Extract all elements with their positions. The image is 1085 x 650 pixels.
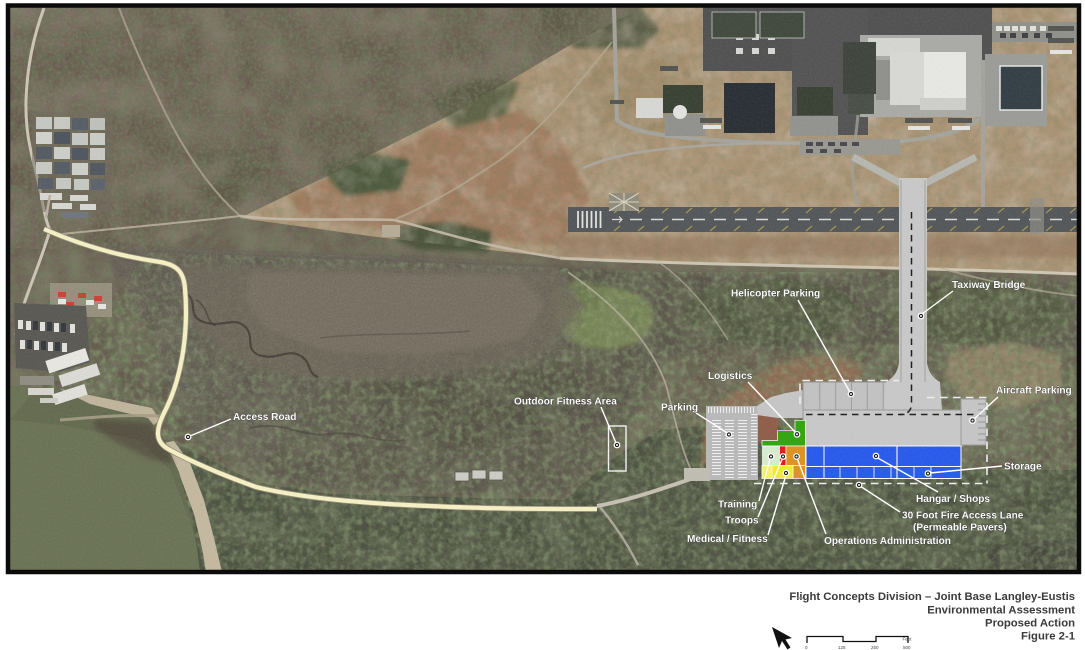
svg-text:Aircraft Parking: Aircraft Parking: [996, 386, 1072, 397]
svg-text:(Permeable Pavers): (Permeable Pavers): [913, 523, 1007, 534]
svg-text:Flight Concepts Division – Jo: Flight Concepts Division – Joint Base La…: [789, 591, 1075, 603]
svg-text:Access Road: Access Road: [233, 412, 296, 423]
svg-text:Troops: Troops: [725, 516, 759, 527]
svg-text:Proposed Action: Proposed Action: [985, 618, 1075, 630]
svg-text:Outdoor Fitness Area: Outdoor Fitness Area: [514, 397, 617, 408]
svg-text:Logistics: Logistics: [708, 371, 753, 382]
svg-text:250: 250: [871, 645, 879, 650]
svg-text:Operations Administration: Operations Administration: [824, 536, 951, 547]
svg-text:Feet: Feet: [903, 637, 913, 642]
svg-text:Figure 2-1: Figure 2-1: [1021, 631, 1075, 643]
svg-text:Storage: Storage: [1004, 462, 1042, 473]
svg-text:30 Foot Fire Access Lane: 30 Foot Fire Access Lane: [902, 511, 1024, 522]
svg-text:Medical / Fitness: Medical / Fitness: [687, 534, 768, 545]
svg-text:Training: Training: [718, 500, 757, 511]
svg-text:Helicopter Parking: Helicopter Parking: [731, 289, 820, 300]
svg-text:125: 125: [838, 645, 846, 650]
svg-text:Parking: Parking: [661, 403, 698, 414]
svg-text:500: 500: [903, 645, 911, 650]
svg-text:Taxiway Bridge: Taxiway Bridge: [952, 280, 1026, 291]
svg-text:Hangar / Shops: Hangar / Shops: [916, 494, 990, 505]
svg-text:Environmental Assessment: Environmental Assessment: [927, 604, 1075, 616]
